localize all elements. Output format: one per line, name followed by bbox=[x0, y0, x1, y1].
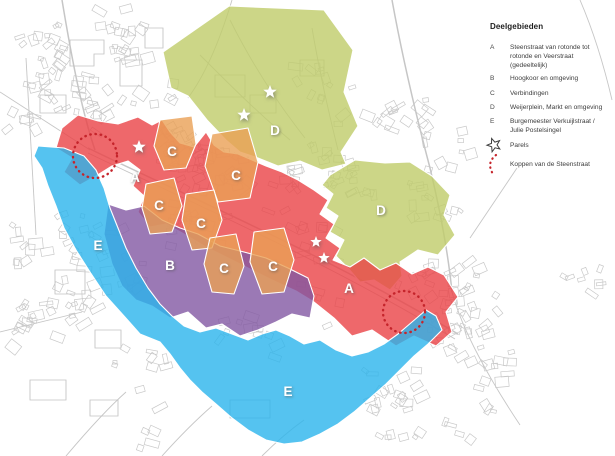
legend-key: C bbox=[490, 89, 510, 98]
legend-key: A bbox=[490, 43, 510, 70]
legend-key: D bbox=[490, 103, 510, 112]
legend-label: Weijerplein, Markt en omgeving bbox=[510, 103, 610, 112]
zone-label-c: C bbox=[154, 198, 164, 213]
legend: Deelgebieden A Steenstraat van rotonde t… bbox=[484, 0, 612, 230]
zone-label-d: D bbox=[376, 203, 386, 218]
legend-item-a: A Steenstraat van rotonde tot rotonde en… bbox=[490, 43, 610, 70]
legend-item-e: E Burgemeester Verkuijlstraat / Julie Po… bbox=[490, 117, 610, 135]
zone-label-b: B bbox=[165, 258, 175, 273]
legend-label: Parels bbox=[510, 141, 610, 150]
zone-label-c: C bbox=[219, 261, 229, 276]
legend-label: Hoogkoor en omgeving bbox=[510, 74, 610, 83]
legend-label: Steenstraat van rotonde tot rotonde en V… bbox=[510, 43, 610, 70]
legend-item-d: D Weijerplein, Markt en omgeving bbox=[490, 103, 610, 112]
legend-item-c: C Verbindingen bbox=[490, 89, 610, 98]
zone-label-c: C bbox=[167, 144, 177, 159]
zone-label-d: D bbox=[270, 123, 280, 138]
zone-label-c: C bbox=[231, 168, 241, 183]
legend-key: B bbox=[490, 74, 510, 83]
legend-title: Deelgebieden bbox=[490, 22, 543, 31]
legend-label: Koppen van de Steenstraat bbox=[510, 160, 610, 169]
map-figure: AABCCCCCCDDEE Deelgebieden A Steenstraat… bbox=[0, 0, 615, 456]
legend-symbol-parels: Parels bbox=[510, 141, 610, 150]
zone-label-a: A bbox=[344, 281, 354, 296]
legend-symbol-koppen: Koppen van de Steenstraat bbox=[510, 160, 610, 169]
zone-label-e: E bbox=[283, 384, 292, 399]
legend-label: Verbindingen bbox=[510, 89, 610, 98]
zone-label-a: A bbox=[130, 170, 140, 185]
legend-label: Burgemeester Verkuijlstraat / Julie Post… bbox=[510, 117, 610, 135]
zone-label-e: E bbox=[93, 238, 102, 253]
legend-key: E bbox=[490, 117, 510, 135]
zones-layer bbox=[34, 6, 458, 444]
zone-label-c: C bbox=[268, 259, 278, 274]
zone-label-c: C bbox=[196, 216, 206, 231]
legend-item-b: B Hoogkoor en omgeving bbox=[490, 74, 610, 83]
